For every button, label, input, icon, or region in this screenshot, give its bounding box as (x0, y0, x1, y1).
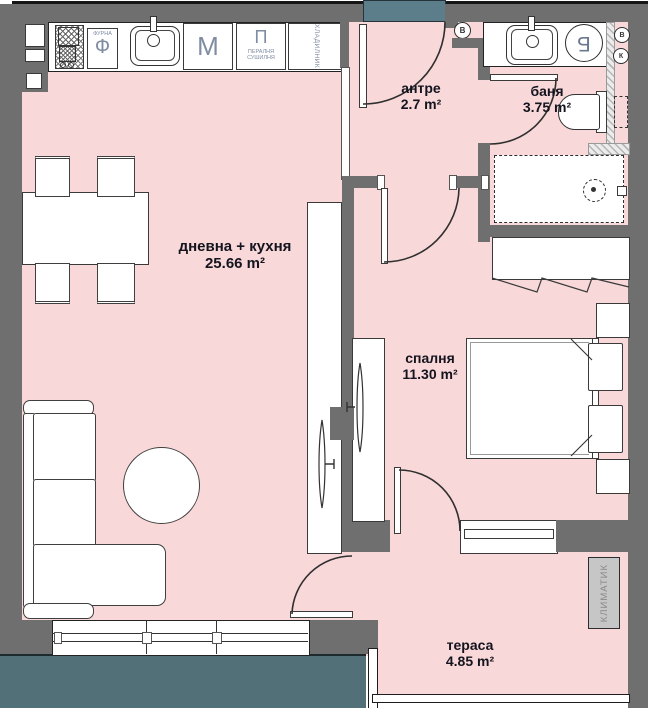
pillow (588, 343, 623, 391)
stove-knob-icon (68, 62, 74, 68)
entry-shaft-circle: В (454, 22, 471, 39)
window-tick (142, 632, 152, 644)
room-area-bedroom: 11.30 m² (388, 366, 472, 382)
bed-blanket-line (470, 342, 589, 455)
room-label-living: дневна + кухня 25.66 m² (150, 238, 320, 273)
dining-table (22, 192, 149, 265)
laundry-letter: П (237, 28, 285, 46)
wall-bedroom-block (342, 520, 390, 552)
bath-door-leaf (490, 74, 558, 81)
faucet-icon (526, 35, 539, 48)
oven-letter: Ф (88, 37, 117, 57)
entrance-door-leaf (359, 24, 367, 108)
wall-left (0, 4, 22, 656)
sofa-chaise (33, 544, 166, 606)
partition-frame (341, 67, 350, 180)
room-area-terrace: 4.85 m² (428, 653, 512, 669)
window-mullion (52, 641, 308, 642)
window-tick (54, 632, 62, 644)
bedroom-hall-door-leaf (381, 188, 388, 264)
window-bedroom-sash (464, 529, 554, 539)
faucet-icon (150, 16, 157, 32)
fridge-label: ХЛАДИЛНИК (313, 24, 320, 68)
wall-window-pier (22, 620, 52, 654)
wall-shaft-hatch (606, 22, 615, 156)
room-name-terrace: тераса (428, 637, 512, 653)
stove-knob-icon (60, 62, 66, 68)
boiler-circle: Б (565, 24, 603, 62)
nightstand (596, 459, 630, 494)
coffee-table (123, 447, 200, 524)
floor-plan: ФУРНА Ф М П ПЕРАЛНЯ СУШИЛНЯ ХЛАДИЛНИК В … (0, 0, 648, 708)
ac-unit: КЛИМАТИК (588, 557, 620, 629)
wall-pier (330, 407, 354, 440)
wall-top (0, 4, 648, 22)
chair (97, 156, 135, 197)
fridge-box: ХЛАДИЛНИК (288, 23, 345, 70)
vent-shaft-circle: В (614, 27, 630, 43)
shower-valve-icon (617, 186, 627, 196)
oven-box: ФУРНА Ф (87, 28, 118, 69)
chair (97, 263, 135, 304)
laundry-line2: СУШИЛНЯ (237, 55, 285, 61)
wall-hall-stub-right (455, 176, 483, 188)
wall-window-right (556, 520, 628, 552)
dishwasher-letter: М (197, 31, 219, 62)
room-label-terrace: тераса 4.85 m² (428, 637, 512, 669)
living-terrace-door-leaf (290, 611, 353, 618)
boiler-letter: Б (577, 31, 591, 55)
chair (35, 156, 70, 197)
wall-hall-stub-left (342, 176, 381, 188)
wall-right (628, 4, 648, 708)
sofa-armrest (23, 603, 94, 619)
room-name-bedroom: спалня (388, 350, 472, 366)
shower-drain-dot (591, 187, 596, 192)
wall-kitchen-stub (340, 18, 349, 68)
shaft-dashed-box (614, 96, 628, 128)
stove-burner-icon (58, 27, 79, 46)
stove-burner-icon (59, 46, 76, 62)
room-area-bath: 3.75 m² (507, 99, 587, 115)
faucet-icon (528, 16, 535, 31)
room-name-bath: баня (507, 83, 587, 99)
wall-bath-bottom (480, 225, 628, 237)
washer-dryer-box: П ПЕРАЛНЯ СУШИЛНЯ (236, 23, 286, 70)
entrance-door-band (363, 0, 446, 22)
wall-shaft-hatch (588, 143, 630, 155)
room-name-entry: антре (381, 80, 461, 96)
shaft-box (26, 73, 42, 89)
room-label-bath: баня 3.75 m² (507, 83, 587, 115)
room-area-entry: 2.7 m² (381, 96, 461, 112)
shaft-box (25, 24, 45, 47)
window-tick (212, 632, 222, 644)
entry-shaft-letter: В (460, 26, 466, 35)
sewer-shaft-circle: К (613, 48, 629, 64)
chair (35, 263, 70, 304)
door-frame-cap (481, 175, 489, 190)
wardrobe (492, 237, 630, 280)
exterior-strip-bottom (0, 654, 366, 708)
ac-label: КЛИМАТИК (599, 564, 610, 622)
window-mullion (52, 633, 308, 634)
room-label-bedroom: спалня 11.30 m² (388, 350, 472, 382)
window-living (52, 620, 310, 656)
room-area-living: 25.66 m² (150, 255, 320, 272)
door-frame-cap (449, 175, 457, 190)
terrace-railing (372, 694, 630, 703)
sofa-seat (33, 413, 96, 482)
vent-shaft-letter: В (619, 32, 624, 39)
shaft-box (25, 49, 45, 62)
dishwasher-box: М (183, 23, 233, 70)
room-name-living: дневна + кухня (150, 238, 320, 255)
bedroom-terrace-door-leaf (394, 467, 401, 534)
faucet-icon (147, 34, 160, 47)
pillow (588, 405, 623, 453)
nightstand (596, 303, 630, 338)
sewer-shaft-letter: К (619, 53, 623, 60)
tv-cabinet-bedroom (352, 338, 385, 522)
room-label-entry: антре 2.7 m² (381, 80, 461, 112)
sofa-seat (33, 479, 96, 547)
